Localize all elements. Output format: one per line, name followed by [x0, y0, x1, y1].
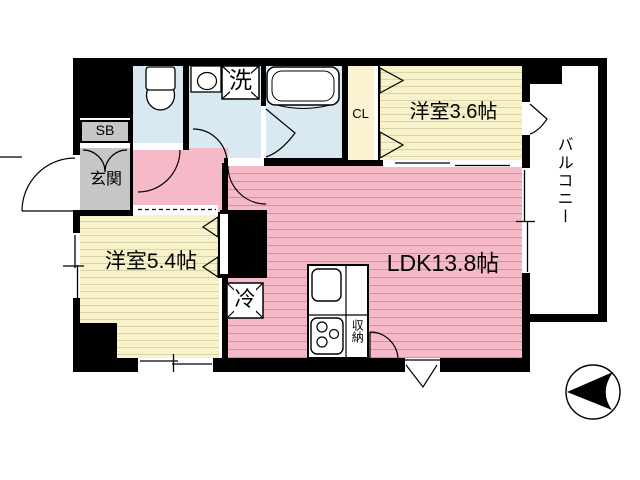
toilet-door-arc — [138, 150, 180, 192]
floorplan: 洋室3.6帖 洋室5.4帖 LDK13.8帖 バルコニー CL CL SB 玄関… — [0, 0, 640, 480]
washroom-door-arc — [193, 129, 227, 163]
pillar — [78, 323, 117, 358]
walls-and-fixtures — [0, 0, 640, 480]
kitchen-sink — [312, 269, 341, 301]
entrance-door-leaf — [0, 157, 75, 211]
kitchen-side-door-arc — [370, 332, 398, 360]
compass-icon — [566, 365, 620, 419]
bathtub — [267, 67, 339, 105]
kitchen-storage-label: 収納 — [350, 319, 363, 343]
bathroom-door-fan — [266, 109, 295, 157]
ldk-door-arc — [228, 166, 266, 204]
service-door-fan — [406, 365, 437, 387]
room36-label: 洋室3.6帖 — [385, 101, 522, 123]
balcony-pipe-box — [528, 66, 562, 84]
refrigerator-label: 冷 — [227, 288, 263, 311]
ldk-label: LDK13.8帖 — [378, 251, 508, 276]
balcony-label: バルコニー — [554, 136, 572, 226]
shoebox-door-arcs — [83, 150, 127, 172]
shoe-box-label: SB — [80, 123, 130, 138]
washbasin-bowl — [198, 73, 217, 90]
entrance-label: 玄関 — [80, 171, 132, 189]
washer-label: 洗 — [222, 68, 259, 93]
kitchen-counter — [308, 265, 368, 358]
room36-balcony-door — [530, 104, 547, 134]
closet-lower-label: CL — [228, 237, 258, 251]
closet-upper-label: CL — [346, 107, 375, 121]
entrance-door-arc — [22, 158, 75, 211]
toilet-tank — [146, 67, 175, 90]
pipe-shaft — [80, 66, 130, 118]
room54-label: 洋室5.4帖 — [88, 250, 214, 273]
